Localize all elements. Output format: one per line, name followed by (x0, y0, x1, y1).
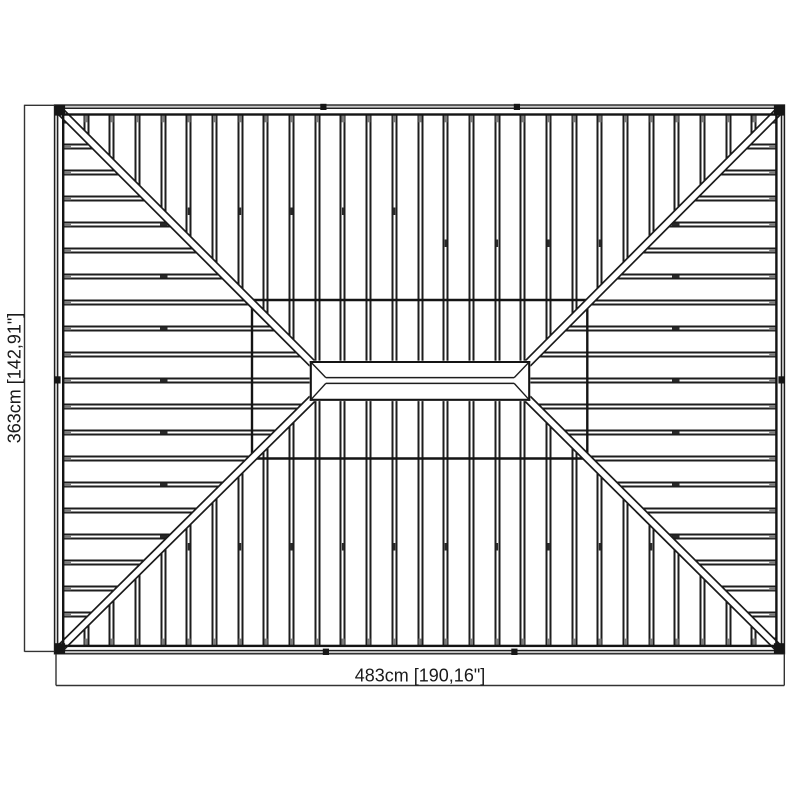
svg-text:363cm [142,91"]: 363cm [142,91"] (5, 313, 25, 443)
svg-text:483cm [190,16"]: 483cm [190,16"] (355, 666, 485, 686)
